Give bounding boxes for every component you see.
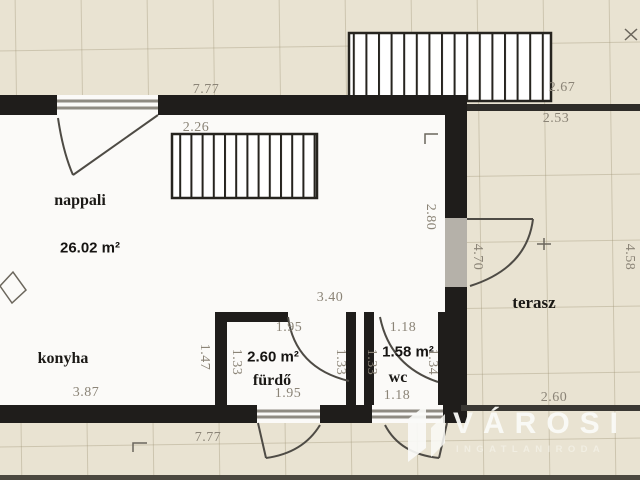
dim-label-bottom-width: 7.77 (195, 430, 222, 446)
varosi-logo-icon (405, 403, 453, 465)
dim-label-wc-bottom: 1.18 (384, 388, 411, 404)
varosi-logo: VÁROSI INGATLANIRODA (405, 403, 635, 465)
dim-label-right-upper: 2.80 (422, 204, 438, 231)
room-label-wc: wc (389, 369, 408, 387)
south-door1-leaf (258, 423, 266, 458)
area-label-nappali: 26.02 m² (60, 240, 120, 257)
varosi-logo-name: VÁROSI (453, 407, 628, 441)
dim-label-top-width: 7.77 (193, 82, 220, 98)
room-label-terasz: terasz (512, 293, 555, 313)
dim-label-furdo-left: 1.33 (228, 349, 244, 376)
dim-label-wc-top: 1.18 (390, 320, 417, 336)
area-label-furdo: 2.60 m² (247, 349, 299, 366)
dim-label-furdo-right: 1.33 (332, 349, 348, 376)
stairs-exterior (349, 33, 551, 101)
dim-label-terasz-right: 4.58 (621, 244, 637, 271)
dim-label-konyha-width: 3.87 (73, 385, 100, 401)
dim-label-nappali-window: 2.26 (183, 120, 210, 136)
south-door1-arc (266, 425, 320, 458)
dim-label-bath-block: 3.40 (317, 290, 344, 306)
room-label-konyha: konyha (38, 350, 89, 368)
room-label-furdo: fürdő (253, 372, 291, 390)
room-label-nappali: nappali (54, 192, 106, 210)
varosi-logo-subtitle: INGATLANIRODA (456, 444, 605, 455)
area-label-wc: 1.58 m² (382, 344, 434, 361)
dim-label-konyha-wall: 1.47 (196, 344, 212, 371)
dim-label-wc-left: 1.33 (363, 349, 379, 376)
dim-label-furdo-top: 1.95 (276, 320, 303, 336)
bottom-border-line (0, 475, 640, 480)
stairs-interior (172, 134, 317, 198)
floorplan-image: 7.77 2.67 2.53 2.26 2.80 4.70 4.58 3.40 … (0, 0, 640, 480)
dim-label-terasz-left: 4.70 (469, 244, 485, 271)
dim-label-stair-top: 2.67 (549, 80, 576, 96)
dim-label-terasz-top: 2.53 (543, 111, 570, 127)
terrace-door-opening (445, 218, 467, 287)
